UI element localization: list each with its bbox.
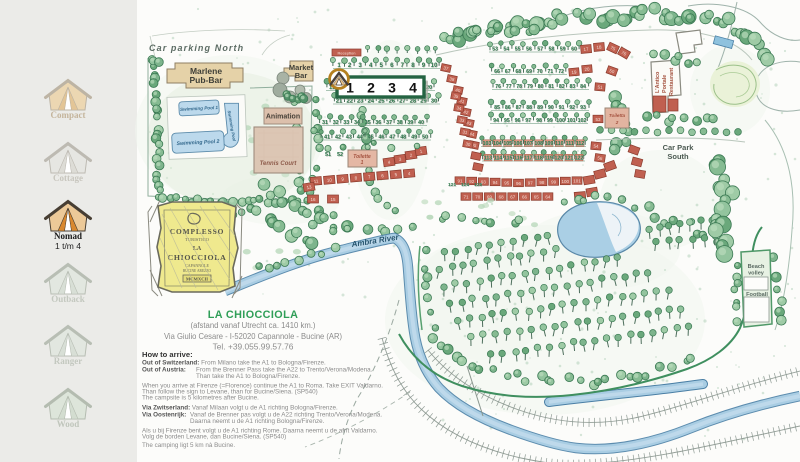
svg-text:Via Giulio Cesare - I-52020 Ca: Via Giulio Cesare - I-52020 Capannole - … [164, 331, 342, 341]
svg-text:19: 19 [571, 70, 577, 75]
svg-text:33: 33 [343, 120, 349, 126]
svg-text:Than take the A1 to Bologna/Fi: Than take the A1 to Bologna/Firenze. [196, 373, 300, 380]
svg-text:3: 3 [388, 80, 396, 96]
svg-text:101: 101 [573, 178, 581, 183]
svg-text:70: 70 [537, 69, 543, 75]
svg-text:100: 100 [562, 179, 570, 184]
svg-text:39: 39 [407, 120, 413, 126]
svg-text:88: 88 [526, 105, 532, 111]
svg-text:42: 42 [335, 135, 341, 141]
svg-text:Via Zwitserland: Vanaf Milaan: Via Zwitserland: Vanaf Milaan volgt u de… [142, 405, 338, 412]
svg-text:The campsite is 5 kilometres a: The campsite is 5 kilometres after Bucin… [142, 395, 259, 402]
svg-text:107: 107 [524, 141, 533, 147]
svg-text:94: 94 [493, 180, 499, 185]
svg-text:110: 110 [555, 141, 563, 147]
svg-text:17: 17 [583, 47, 589, 52]
svg-text:81: 81 [548, 84, 554, 90]
svg-text:Cottage: Cottage [53, 173, 83, 183]
svg-text:Restaurant: Restaurant [669, 68, 675, 96]
svg-text:Tennis Court: Tennis Court [260, 161, 298, 167]
svg-text:37: 37 [386, 120, 392, 126]
svg-text:116: 116 [514, 156, 522, 162]
svg-text:18: 18 [596, 45, 602, 50]
svg-text:90: 90 [548, 105, 554, 111]
svg-text:55: 55 [515, 47, 521, 53]
svg-text:Outback: Outback [51, 294, 85, 304]
svg-text:47: 47 [389, 135, 395, 141]
svg-text:MCMXCII: MCMXCII [186, 277, 208, 282]
svg-text:113: 113 [484, 156, 492, 162]
svg-text:57: 57 [537, 47, 543, 53]
svg-text:71: 71 [463, 194, 469, 199]
svg-text:80: 80 [538, 84, 544, 90]
svg-text:54: 54 [593, 144, 599, 149]
svg-text:38: 38 [397, 120, 403, 126]
svg-text:1 t/m 4: 1 t/m 4 [55, 241, 81, 251]
svg-text:93: 93 [580, 105, 586, 111]
svg-text:111: 111 [566, 141, 574, 147]
svg-text:Pub-Bar: Pub-Bar [189, 75, 223, 85]
svg-text:41: 41 [324, 135, 330, 141]
svg-text:106: 106 [514, 141, 523, 147]
svg-text:114: 114 [494, 156, 502, 162]
svg-text:Out of Austria:: Out of Austria: [142, 367, 186, 374]
svg-text:98: 98 [539, 180, 545, 185]
svg-text:82: 82 [559, 84, 565, 90]
svg-text:10: 10 [327, 177, 333, 182]
svg-text:117: 117 [524, 156, 532, 162]
svg-text:36: 36 [375, 120, 381, 126]
svg-text:67: 67 [510, 194, 516, 199]
svg-text:Nomad: Nomad [54, 231, 82, 241]
svg-text:20: 20 [584, 67, 590, 72]
svg-text:70: 70 [475, 194, 481, 199]
svg-text:109: 109 [545, 141, 554, 147]
svg-text:125: 125 [474, 182, 482, 188]
svg-text:121: 121 [565, 156, 574, 162]
svg-text:95: 95 [504, 118, 510, 124]
svg-text:L'Antico: L'Antico [655, 71, 661, 93]
svg-text:Beach: Beach [748, 264, 765, 270]
svg-text:Daarna neemt u de A1 richting: Daarna neemt u de A1 richting Bologna/Fi… [190, 418, 325, 425]
svg-text:67: 67 [505, 69, 511, 75]
svg-text:43: 43 [346, 135, 352, 141]
svg-text:CAPANNOLE: CAPANNOLE [185, 263, 209, 268]
svg-text:56: 56 [526, 47, 532, 53]
svg-text:59: 59 [560, 47, 566, 53]
svg-text:Compact: Compact [51, 110, 86, 120]
svg-text:76: 76 [495, 84, 501, 90]
svg-text:4: 4 [409, 80, 417, 96]
svg-text:2: 2 [615, 120, 619, 125]
svg-text:1: 1 [361, 160, 364, 166]
svg-text:16: 16 [310, 197, 316, 202]
svg-text:32: 32 [333, 120, 339, 126]
svg-text:64: 64 [545, 194, 551, 199]
svg-text:COMPLESSO: COMPLESSO [170, 227, 225, 236]
svg-text:83: 83 [570, 84, 576, 90]
svg-text:15: 15 [330, 197, 336, 202]
svg-text:100: 100 [556, 118, 565, 124]
svg-text:115: 115 [504, 156, 512, 162]
svg-text:97: 97 [525, 118, 531, 124]
svg-text:122: 122 [575, 156, 584, 162]
svg-text:52: 52 [337, 152, 343, 158]
svg-text:72: 72 [558, 69, 564, 75]
svg-text:Car parking North: Car parking North [149, 43, 244, 53]
svg-text:95: 95 [504, 180, 510, 185]
svg-text:46: 46 [378, 135, 384, 141]
svg-text:Football: Football [746, 292, 768, 298]
svg-text:Toiletta: Toiletta [609, 113, 626, 118]
svg-text:91: 91 [559, 105, 565, 111]
svg-text:119: 119 [545, 156, 553, 162]
svg-text:71: 71 [547, 69, 553, 75]
svg-text:How to arrive:: How to arrive: [142, 350, 193, 359]
svg-text:The camping ligt 5 km nà Bucin: The camping ligt 5 km nà Bucine. [142, 442, 235, 449]
svg-text:Out of Switzerland: From Mila: Out of Switzerland: From Milano take the… [142, 360, 326, 367]
svg-text:10: 10 [431, 63, 438, 69]
svg-text:101: 101 [567, 118, 576, 124]
svg-text:78: 78 [516, 84, 522, 90]
svg-text:103: 103 [483, 141, 492, 147]
svg-text:66: 66 [522, 194, 528, 199]
svg-text:44: 44 [357, 135, 363, 141]
svg-text:40: 40 [418, 120, 424, 126]
svg-text:87: 87 [516, 105, 522, 111]
svg-text:60: 60 [571, 47, 577, 53]
svg-text:108: 108 [534, 141, 543, 147]
svg-text:LA CHIOCCIOLA: LA CHIOCCIOLA [208, 309, 299, 321]
svg-text:51: 51 [325, 152, 331, 158]
svg-text:54: 54 [503, 47, 509, 53]
svg-text:49: 49 [411, 135, 417, 141]
svg-text:Car Park: Car Park [663, 143, 695, 152]
svg-text:Bar: Bar [295, 71, 308, 80]
svg-text:68: 68 [515, 69, 521, 75]
svg-text:118: 118 [534, 156, 542, 162]
svg-text:105: 105 [503, 141, 512, 147]
svg-text:85: 85 [494, 105, 500, 111]
svg-text:79: 79 [527, 84, 533, 90]
svg-text:86: 86 [505, 105, 511, 111]
svg-text:121: 121 [448, 182, 456, 188]
svg-text:96: 96 [516, 181, 522, 186]
svg-text:94: 94 [493, 118, 499, 124]
svg-text:Animation: Animation [266, 114, 300, 121]
svg-text:53: 53 [595, 117, 601, 122]
svg-text:Reception: Reception [337, 51, 355, 56]
svg-text:99: 99 [551, 179, 557, 184]
svg-text:(afstand vanaf Utrecht ca. 141: (afstand vanaf Utrecht ca. 1410 km.) [191, 321, 316, 330]
svg-text:31: 31 [322, 120, 328, 126]
svg-text:Wood: Wood [57, 419, 80, 429]
svg-text:65: 65 [534, 194, 540, 199]
svg-text:2: 2 [367, 80, 375, 96]
svg-text:Volg de borden Levane, dan Buc: Volg de borden Levane, dan Bucine/Siena.… [142, 434, 286, 441]
svg-text:48: 48 [400, 135, 406, 141]
svg-text:124: 124 [461, 182, 469, 188]
svg-text:35: 35 [365, 120, 371, 126]
svg-text:77: 77 [506, 84, 512, 90]
svg-text:Via Oostenrijk:: Via Oostenrijk: [142, 412, 186, 419]
svg-text:58: 58 [549, 47, 555, 53]
svg-text:96: 96 [515, 118, 521, 124]
svg-text:102: 102 [578, 118, 587, 124]
svg-text:30: 30 [431, 99, 437, 105]
svg-text:Ranger: Ranger [54, 356, 83, 366]
svg-text:92: 92 [569, 105, 575, 111]
svg-text:89: 89 [537, 105, 543, 111]
svg-text:120: 120 [554, 156, 563, 162]
svg-text:South: South [667, 152, 689, 161]
svg-text:51: 51 [597, 85, 603, 90]
svg-text:104: 104 [493, 141, 502, 147]
svg-text:68: 68 [499, 194, 505, 199]
svg-text:Tel. +39.055.99.57.76: Tel. +39.055.99.57.76 [213, 342, 294, 352]
svg-text:112: 112 [576, 141, 584, 147]
svg-text:97: 97 [528, 180, 534, 185]
svg-text:98: 98 [536, 118, 542, 124]
svg-text:50: 50 [422, 135, 428, 141]
svg-text:Portale: Portale [662, 75, 668, 93]
svg-text:34: 34 [354, 120, 360, 126]
svg-text:45: 45 [368, 135, 374, 141]
svg-text:99: 99 [547, 118, 553, 124]
svg-text:volley: volley [748, 271, 765, 277]
svg-text:66: 66 [494, 69, 500, 75]
svg-text:53: 53 [492, 47, 498, 53]
svg-text:84: 84 [580, 84, 586, 90]
svg-text:69: 69 [526, 69, 532, 75]
